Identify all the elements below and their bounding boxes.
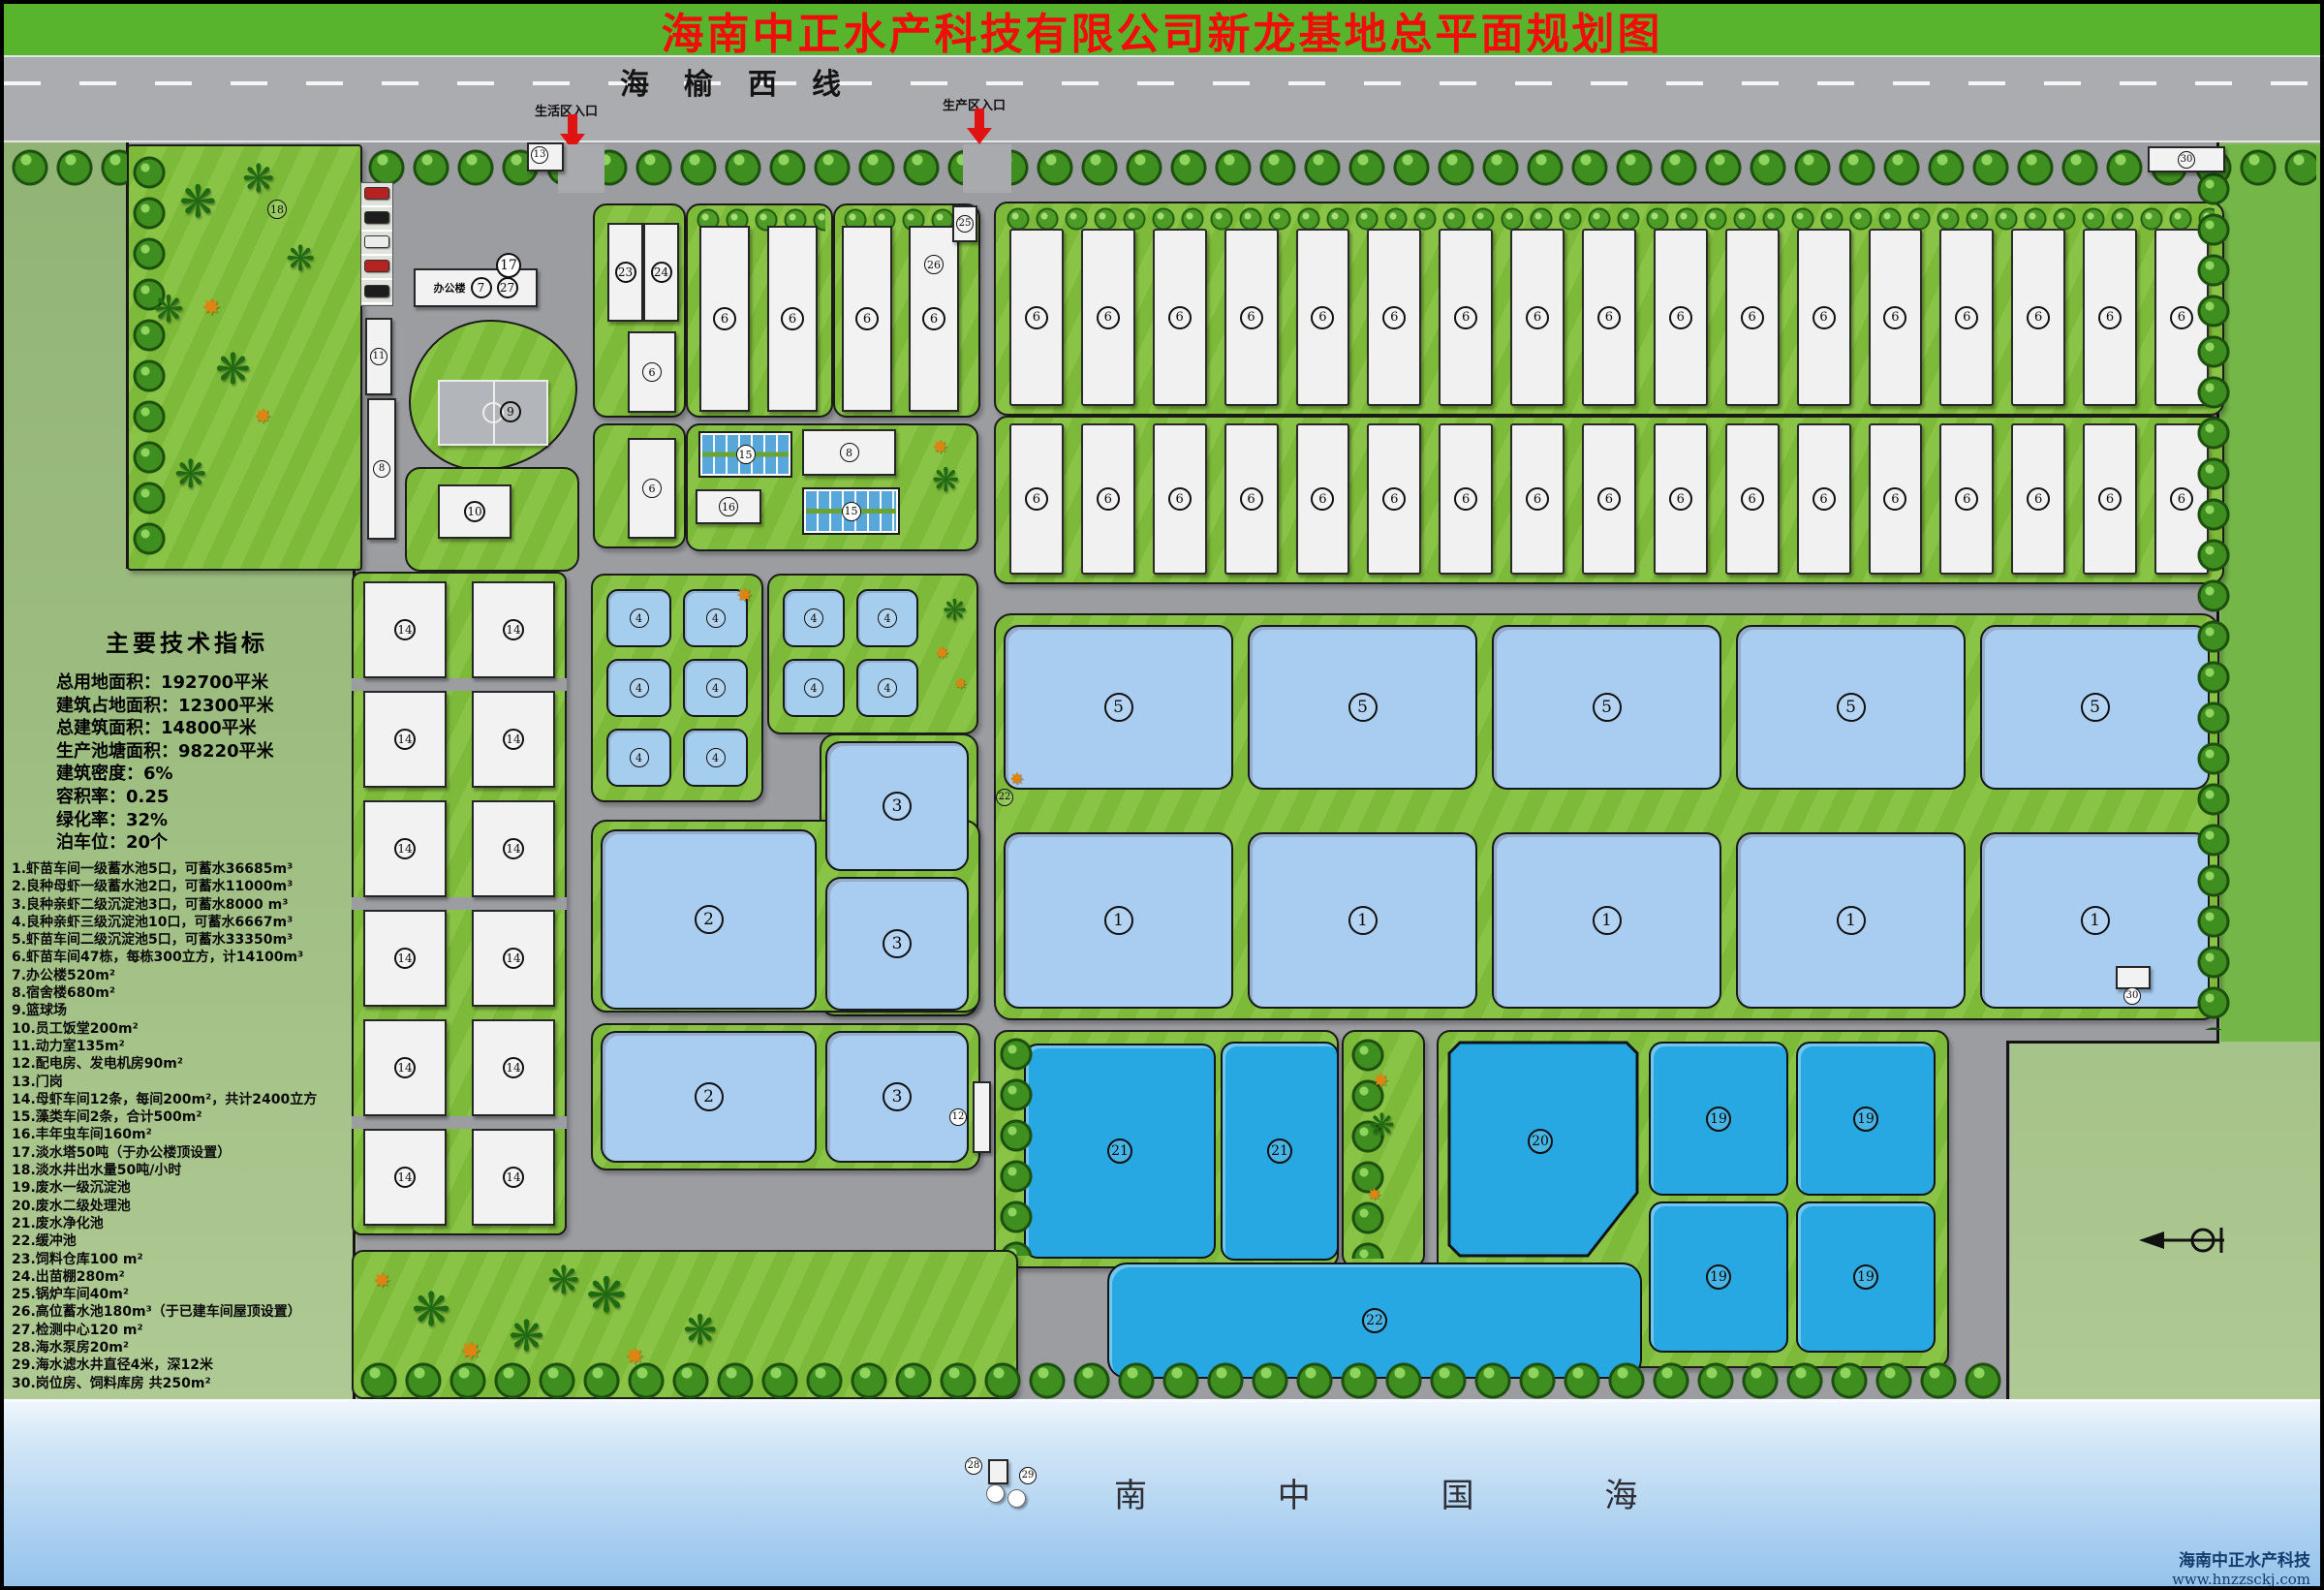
purification-pond: 21 xyxy=(1221,1042,1339,1261)
marker-6-shed: 6 xyxy=(1741,487,1764,511)
canteen-building: 10 xyxy=(438,484,511,539)
reservoir-pond: 1 xyxy=(1004,832,1233,1009)
tree-strip-zone: ❋ ✸ ✸ xyxy=(1342,1030,1425,1268)
shrimp-shed-building: 6 xyxy=(1582,229,1636,406)
marker-4-tertiary-sedimentation: 4 xyxy=(706,608,726,628)
marker-30-post-house: 30 xyxy=(2123,987,2141,1005)
palm-tree-icon: ❋ xyxy=(547,1262,580,1300)
palm-tree-icon: ❋ xyxy=(153,291,184,327)
list-item: 29.海水滤水井直径4米，深12米 xyxy=(12,1356,353,1374)
filter-well-icon xyxy=(986,1484,1005,1503)
marker-8-dormitory: 8 xyxy=(373,460,390,478)
shrimp-shed-building: 6 xyxy=(842,226,892,412)
generator-building xyxy=(973,1081,991,1153)
shrimp-shed-building: 6 xyxy=(1869,229,1923,406)
marker-4-tertiary-sedimentation: 4 xyxy=(630,678,649,698)
marker-6-shed: 6 xyxy=(2098,487,2122,511)
pond4-zone: 4 4 4 4 4 4 xyxy=(591,574,763,802)
list-item: 总用地面积：192700平米 xyxy=(56,671,318,695)
list-item: 23.饲料仓库100 m² xyxy=(12,1251,353,1268)
list-item: 15.藻类车间2条，合计500m² xyxy=(12,1108,353,1126)
reservoir-pond: 1 xyxy=(1980,832,2210,1009)
marker-4-tertiary-sedimentation: 4 xyxy=(630,748,649,767)
marker-5-secondary-sedimentation: 5 xyxy=(1593,693,1622,722)
marker-6-shed: 6 xyxy=(1168,487,1192,511)
shrimp-shed-building: 6 xyxy=(2011,229,2065,406)
tertiary-sedimentation-pond: 4 xyxy=(683,729,748,787)
list-item: 建筑密度：6% xyxy=(56,763,318,786)
marker-14-workshop: 14 xyxy=(394,1167,416,1188)
reservoir-pond: 5 xyxy=(1980,625,2210,790)
legend-list: 1.虾苗车间一级蓄水池5口，可蓄水36685m³2.良种母虾一级蓄水池2口，可蓄… xyxy=(12,860,353,1392)
list-item: 4.良种亲虾三级沉淀池10口，可蓄水6667m³ xyxy=(12,914,353,931)
mother-shrimp-workshop: 14 xyxy=(363,1019,447,1116)
marker-6-shed: 6 xyxy=(1240,306,1263,329)
marker-6-shed: 6 xyxy=(1526,306,1549,329)
shrimp-shed-building: 6 xyxy=(1296,229,1350,406)
algae-pond: 15 xyxy=(802,487,900,535)
reservoir-pond: 1 xyxy=(1736,832,1966,1009)
company-watermark: 海南中正水产科技 www.hnzzsckj.com xyxy=(2172,1546,2310,1588)
seedling-shed-building: 24 xyxy=(643,223,679,322)
marker-16-artemia: 16 xyxy=(719,497,738,516)
shrub-icon: ✸ xyxy=(736,585,753,605)
marker-5-secondary-sedimentation: 5 xyxy=(2081,693,2110,722)
office-label: 办公楼 xyxy=(434,280,466,296)
marker-14-workshop: 14 xyxy=(394,1057,416,1078)
marker-3: 3 xyxy=(883,792,912,821)
shrub-icon: ✸ xyxy=(1367,1187,1381,1204)
list-item: 泊车位：20个 xyxy=(56,831,318,855)
marker-4-tertiary-sedimentation: 4 xyxy=(630,608,649,628)
page-title: 海南中正水产科技有限公司新龙基地总平面规划图 xyxy=(662,0,1663,61)
shrimp-shed-building: 6 xyxy=(1367,229,1421,406)
mother-shrimp-workshop: 14 xyxy=(363,910,447,1007)
primary-reservoir-pond: 2 xyxy=(601,1031,817,1163)
company-name: 海南中正水产科技 xyxy=(2172,1546,2310,1571)
mother-shrimp-workshop: 14 xyxy=(363,581,447,678)
car-icon xyxy=(364,211,389,224)
shrub-icon: ✸ xyxy=(373,1271,390,1293)
tertiary-sedimentation-pond: 4 xyxy=(606,659,671,717)
production-entrance-arrow-icon xyxy=(967,109,992,144)
mother-shrimp-workshop: 14 xyxy=(363,691,447,788)
sea-name: 南 中 国 海 xyxy=(1114,1469,1697,1516)
marker-10-canteen: 10 xyxy=(464,501,485,522)
marker-6-shed: 6 xyxy=(1025,306,1048,329)
reservoir-pond: 5 xyxy=(1248,625,1477,790)
shrimp-shed-building: 6 xyxy=(628,331,676,413)
palm-tree-icon: ❋ xyxy=(242,160,275,199)
reservoir-pond: 5 xyxy=(1736,625,1966,790)
mother-shrimp-workshop: 14 xyxy=(363,1129,447,1226)
marker-6-shed: 6 xyxy=(2170,487,2193,511)
shrub-icon: ✸ xyxy=(1009,771,1024,789)
marker-1-primary-reservoir: 1 xyxy=(1348,906,1378,935)
shrimp-shed-building: 6 xyxy=(1153,423,1207,575)
list-item: 建筑占地面积：12300平米 xyxy=(56,695,318,718)
marker-20-secondary-treatment: 20 xyxy=(1528,1129,1553,1154)
marker-6-shed: 6 xyxy=(1526,487,1549,511)
list-item: 17.淡水塔50吨（于办公楼顶设置） xyxy=(12,1144,353,1162)
marker-26-rooftop-tank: 26 xyxy=(924,255,944,274)
shed-zone: 6 6 xyxy=(686,203,833,418)
palm-tree-icon: ❋ xyxy=(943,597,967,626)
palm-tree-icon: ❋ xyxy=(683,1310,717,1351)
shrub-icon: ✸ xyxy=(254,407,271,428)
dormitory-building-2: 8 xyxy=(802,429,896,476)
palm-tree-icon: ❋ xyxy=(215,349,251,391)
primary-sedimentation-pond: 19 xyxy=(1649,1201,1788,1353)
marker-2: 2 xyxy=(695,1082,724,1111)
list-item: 生产池塘面积：98220平米 xyxy=(56,740,318,764)
marker-1-primary-reservoir: 1 xyxy=(1104,906,1133,935)
marker-17-water-tower: 17 xyxy=(496,253,521,278)
marker-4-tertiary-sedimentation: 4 xyxy=(706,748,726,767)
marker-14-workshop: 14 xyxy=(503,729,524,750)
marker-15-algae: 15 xyxy=(842,502,861,521)
marker-14-workshop: 14 xyxy=(503,948,524,969)
marker-6-shed: 6 xyxy=(1311,306,1334,329)
marker-29-filter-well: 29 xyxy=(1019,1467,1037,1484)
list-item: 19.废水一级沉淀池 xyxy=(12,1179,353,1197)
marker-21-purification: 21 xyxy=(1107,1138,1132,1164)
shrimp-shed-building: 6 xyxy=(1009,229,1064,406)
post-house-building: 30 xyxy=(2148,146,2225,172)
shrimp-shed-building: 6 xyxy=(1224,229,1279,406)
shrimp-shed-building: 6 xyxy=(1153,229,1207,406)
tertiary-sedimentation-pond: 4 xyxy=(783,659,845,717)
right-green-margin xyxy=(2220,144,2320,1042)
marker-6-shed: 6 xyxy=(1597,306,1621,329)
tertiary-sedimentation-pond: 4 xyxy=(606,729,671,787)
marker-14-workshop: 14 xyxy=(394,948,416,969)
marker-19: 19 xyxy=(1706,1107,1731,1132)
highway xyxy=(4,55,2320,142)
palm-tree-icon: ❋ xyxy=(1369,1109,1395,1140)
secondary-sedimentation-pond: 3 xyxy=(825,877,969,1011)
mother-shrimp-workshop: 14 xyxy=(472,1129,555,1226)
tertiary-sedimentation-pond: 4 xyxy=(606,589,671,647)
list-item: 14.母虾车间12条，每间200m²，共计2400立方 xyxy=(12,1091,353,1108)
filter-well-icon xyxy=(1007,1489,1026,1508)
mother-shrimp-workshop: 14 xyxy=(472,910,555,1007)
algae-zone: 15 8 16 15 ❋ ✸ xyxy=(686,423,978,551)
marker-6-shed: 6 xyxy=(1955,487,1978,511)
list-item: 10.员工饭堂200m² xyxy=(12,1020,353,1038)
boundary-line xyxy=(2008,1041,2219,1044)
marker-19: 19 xyxy=(1706,1264,1731,1290)
mother-shrimp-workshop: 14 xyxy=(472,581,555,678)
shrimp-shed-building: 6 xyxy=(767,226,818,412)
marker-19: 19 xyxy=(1853,1107,1878,1132)
shrimp-shed-building: 6 xyxy=(1797,423,1851,575)
marker-30-post-house: 30 xyxy=(2178,151,2195,169)
marker-13-gate: 13 xyxy=(531,146,548,164)
marker-4-tertiary-sedimentation: 4 xyxy=(804,608,823,628)
list-item: 1.虾苗车间一级蓄水池5口，可蓄水36685m³ xyxy=(12,860,353,878)
shrimp-shed-building: 6 xyxy=(1797,229,1851,406)
marker-1-primary-reservoir: 1 xyxy=(2081,906,2110,935)
mother-shrimp-workshop: 14 xyxy=(472,691,555,788)
primary-reservoir-pond: 2 xyxy=(601,829,817,1010)
marker-6-shed: 6 xyxy=(2098,306,2122,329)
list-item: 13.门岗 xyxy=(12,1074,353,1091)
marker-6-shed: 6 xyxy=(1097,306,1120,329)
marker-12-generator: 12 xyxy=(949,1108,967,1126)
shrub-icon: ✸ xyxy=(954,676,967,692)
list-item: 22.缓冲池 xyxy=(12,1232,353,1250)
algae-pond: 15 xyxy=(698,431,792,478)
marker-28-seawater-pump: 28 xyxy=(965,1457,982,1475)
marker-6-shed: 6 xyxy=(713,307,736,330)
shrimp-shed-building: 6 xyxy=(1654,423,1708,575)
primary-sedimentation-pond: 19 xyxy=(1796,1042,1936,1196)
shrimp-shed-building: 6 xyxy=(1296,423,1350,575)
tree-column xyxy=(129,153,170,560)
mother-shrimp-workshop: 14 xyxy=(363,800,447,897)
primary-sedimentation-pond: 19 xyxy=(1796,1201,1936,1353)
marker-6-shed: 6 xyxy=(1240,487,1263,511)
car-icon xyxy=(364,260,389,272)
road-center-dashes xyxy=(4,81,2312,85)
site-plan-map: 海榆西线 生活区入口 生产区入口 ❋ ❋ ❋ ❋ ❋ ❋ ✸ ✸ 18 13 办… xyxy=(0,0,2324,1590)
basketball-court: 9 xyxy=(438,380,548,446)
entrance-driveway xyxy=(963,144,1011,193)
boundary-line xyxy=(2006,1041,2009,1403)
shrimp-shed-building: 6 xyxy=(1654,229,1708,406)
marker-6-shed: 6 xyxy=(1025,487,1048,511)
marker-27-testing-center: 27 xyxy=(497,277,518,298)
list-item: 30.岗位房、饲料库房 共250m² xyxy=(12,1375,353,1392)
list-item: 20.废水二级处理池 xyxy=(12,1198,353,1215)
marker-6-shed: 6 xyxy=(1597,487,1621,511)
marker-6-shed: 6 xyxy=(2027,487,2050,511)
shrub-icon: ✸ xyxy=(932,437,948,456)
marker-9-basketball-court: 9 xyxy=(500,401,521,422)
palm-tree-icon: ❋ xyxy=(412,1287,450,1333)
marker-5-secondary-sedimentation: 5 xyxy=(1348,693,1378,722)
marker-14-workshop: 14 xyxy=(394,729,416,750)
list-item: 25.锅炉车间40m² xyxy=(12,1286,353,1303)
primary-sedimentation-pond: 19 xyxy=(1649,1042,1788,1196)
reservoir-pond: 1 xyxy=(1248,832,1477,1009)
marker-6-shed: 6 xyxy=(855,307,879,330)
shrimp-shed-building: 6 xyxy=(1510,229,1565,406)
reservoir-pond: 5 xyxy=(1004,625,1233,790)
marker-6-shed: 6 xyxy=(781,307,804,330)
tree-column xyxy=(2193,170,2234,1030)
marker-6-shed: 6 xyxy=(1454,306,1477,329)
shrub-icon: ✸ xyxy=(201,296,221,319)
shrimp-shed-building: 6 xyxy=(1725,423,1780,575)
marker-4-tertiary-sedimentation: 4 xyxy=(878,608,897,628)
shrimp-shed-building: 6 xyxy=(1582,423,1636,575)
marker-6-shed: 6 xyxy=(1813,487,1836,511)
car-icon xyxy=(364,285,389,297)
marker-6-shed: 6 xyxy=(922,307,945,330)
marker-5-secondary-sedimentation: 5 xyxy=(1837,693,1866,722)
marker-14-workshop: 14 xyxy=(503,619,524,640)
indicators-list: 总用地面积：192700平米建筑占地面积：12300平米总建筑面积：14800平… xyxy=(56,671,318,855)
shrimp-shed-building: 6 xyxy=(1725,229,1780,406)
marker-2: 2 xyxy=(695,905,724,934)
post-house-building xyxy=(2116,966,2151,989)
marker-14-workshop: 14 xyxy=(503,1057,524,1078)
tertiary-sedimentation-pond: 4 xyxy=(683,659,748,717)
palm-tree-icon: ❋ xyxy=(586,1271,627,1320)
shrimp-shed-building: 6 xyxy=(1009,423,1064,575)
feed-warehouse-zone: 23 24 6 xyxy=(593,203,686,418)
marker-6-shed: 6 xyxy=(1382,306,1406,329)
marker-6-shed: 6 xyxy=(642,362,662,382)
mother-shrimp-workshop: 14 xyxy=(472,800,555,897)
marker-6-shed: 6 xyxy=(2170,306,2193,329)
tertiary-sedimentation-pond: 4 xyxy=(856,589,918,647)
shrimp-shed-building: 6 xyxy=(1869,423,1923,575)
marker-22-buffer: 22 xyxy=(996,789,1013,806)
list-item: 绿化率：32% xyxy=(56,809,318,832)
shrub-icon: ✸ xyxy=(935,645,949,663)
marker-24-seedling-shed: 24 xyxy=(651,262,672,283)
artemia-building: 16 xyxy=(696,489,761,524)
marker-4-tertiary-sedimentation: 4 xyxy=(706,678,726,698)
office-building: 办公楼 7 27 xyxy=(414,268,538,307)
marker-6-shed: 6 xyxy=(1955,306,1978,329)
marker-19: 19 xyxy=(1853,1264,1878,1290)
marker-11-power-room: 11 xyxy=(370,348,387,365)
marker-14-workshop: 14 xyxy=(394,619,416,640)
list-item: 21.废水净化池 xyxy=(12,1215,353,1232)
marker-14-workshop: 14 xyxy=(503,838,524,859)
marker-6-shed: 6 xyxy=(1883,306,1906,329)
marker-6-shed: 6 xyxy=(1669,487,1692,511)
list-item: 28.海水泵房20m² xyxy=(12,1339,353,1356)
workshop14-zone: 14 14 14 14 14 14 14 14 14 14 14 14 xyxy=(352,572,567,1235)
tree-row xyxy=(356,1358,2005,1403)
title-bar: 海南中正水产科技有限公司新龙基地总平面规划图 xyxy=(4,4,2320,55)
marker-6-shed: 6 xyxy=(1883,487,1906,511)
list-item: 5.虾苗车间二级沉淀池5口，可蓄水33350m³ xyxy=(12,931,353,949)
marker-6-shed: 6 xyxy=(2027,306,2050,329)
shrimp-shed-building: 6 xyxy=(1367,423,1421,575)
marker-7-office: 7 xyxy=(471,277,492,298)
list-item: 6.虾苗车间47栋，每栋300立方，计14100m³ xyxy=(12,949,353,966)
indicators-title: 主要技术指标 xyxy=(56,624,318,658)
marker-15-algae: 15 xyxy=(736,445,756,464)
shed-zone: 6 xyxy=(593,423,686,548)
dormitory-building: 8 xyxy=(367,398,396,540)
compass-icon xyxy=(2137,1211,2234,1269)
marker-6-shed: 6 xyxy=(1382,487,1406,511)
mother-shrimp-workshop: 14 xyxy=(472,1019,555,1116)
car-icon xyxy=(364,187,389,200)
marker-5-secondary-sedimentation: 5 xyxy=(1104,693,1133,722)
shrimp-shed-building: 6 xyxy=(1439,423,1493,575)
palm-tree-icon: ❋ xyxy=(932,464,960,497)
shed-row-zone: 6 6 6 6 6 6 6 6 6 6 6 6 xyxy=(994,202,2224,416)
list-item: 2.良种母虾一级蓄水池2口，可蓄水11000m³ xyxy=(12,878,353,895)
palm-tree-icon: ❋ xyxy=(174,455,207,494)
secondary-sedimentation-pond: 3 xyxy=(825,741,969,871)
list-item: 12.配电房、发电机房90m² xyxy=(12,1055,353,1073)
marker-3: 3 xyxy=(883,929,912,958)
list-item: 3.良种亲虾二级沉淀池3口，可蓄水8000 m³ xyxy=(12,896,353,914)
marker-6-shed: 6 xyxy=(642,479,662,498)
list-item: 26.高位蓄水池180m³（于已建车间屋顶设置） xyxy=(12,1303,353,1321)
list-item: 8.宿舍楼680m² xyxy=(12,984,353,1002)
marker-4-tertiary-sedimentation: 4 xyxy=(804,678,823,698)
marker-18-freshwater-well: 18 xyxy=(267,200,287,219)
car-icon xyxy=(364,235,389,248)
palm-tree-icon: ❋ xyxy=(509,1316,544,1358)
marker-1-primary-reservoir: 1 xyxy=(1837,906,1866,935)
shed-row-zone: 6 6 6 6 6 6 6 6 6 6 6 6 xyxy=(994,416,2224,584)
reservoir-pond: 5 xyxy=(1492,625,1721,790)
list-item: 7.办公楼520m² xyxy=(12,967,353,984)
marker-23-feed-warehouse: 23 xyxy=(615,262,636,283)
secondary-sedimentation-pond: 3 xyxy=(825,1031,969,1163)
marker-25-boiler: 25 xyxy=(956,215,974,233)
list-item: 18.淡水井出水量50吨/小时 xyxy=(12,1162,353,1179)
big-pond-zone: 5 5 5 5 5 1 1 1 1 1 xyxy=(994,613,2219,1020)
reservoir-pond: 1 xyxy=(1492,832,1721,1009)
shrimp-shed-building: 6 xyxy=(1081,229,1135,406)
power-room-building: 11 xyxy=(365,318,392,395)
palm-tree-icon: ❋ xyxy=(179,179,217,224)
marker-6-shed: 6 xyxy=(1097,487,1120,511)
list-item: 24.出苗棚280m² xyxy=(12,1268,353,1286)
pond4-zone: 4 4 4 4 ❋ ✸ ✸ xyxy=(767,574,978,734)
shrimp-shed-building: 6 xyxy=(1439,229,1493,406)
boiler-building: 25 xyxy=(952,205,977,242)
marker-6-shed: 6 xyxy=(1669,306,1692,329)
shrimp-shed-building: 6 xyxy=(1510,423,1565,575)
technical-indicators: 主要技术指标 总用地面积：192700平米建筑占地面积：12300平米总建筑面积… xyxy=(56,624,318,855)
marker-6-shed: 6 xyxy=(1454,487,1477,511)
marker-1-primary-reservoir: 1 xyxy=(1593,906,1622,935)
list-item: 27.检测中心120 m² xyxy=(12,1322,353,1339)
shrimp-shed-building: 6 xyxy=(2083,423,2137,575)
company-website: www.hnzzsckj.com xyxy=(2172,1571,2310,1588)
marker-21-purification: 21 xyxy=(1267,1138,1292,1164)
feed-warehouse-building: 23 xyxy=(607,223,643,322)
shrimp-shed-building: 6 xyxy=(699,226,750,412)
marker-14-workshop: 14 xyxy=(503,1167,524,1188)
curb-line xyxy=(4,140,2320,142)
seawater-pump-building xyxy=(988,1459,1008,1484)
pond21-zone: 21 21 xyxy=(994,1030,1339,1268)
marker-22-buffer: 22 xyxy=(1362,1308,1387,1333)
purification-pond: 21 xyxy=(1024,1044,1216,1259)
marker-6-shed: 6 xyxy=(1311,487,1334,511)
palm-tree-icon: ❋ xyxy=(286,242,315,277)
shrimp-shed-building: 6 xyxy=(1939,229,1994,406)
tree-column xyxy=(996,1035,1037,1256)
marker-14-workshop: 14 xyxy=(394,838,416,859)
tertiary-sedimentation-pond: 4 xyxy=(856,659,918,717)
entrance-driveway xyxy=(558,144,604,193)
marker-6-shed: 6 xyxy=(1813,306,1836,329)
shrimp-shed-building: 6 xyxy=(2011,423,2065,575)
shrimp-shed-building: 6 xyxy=(628,438,676,539)
shrimp-shed-building: 26 6 xyxy=(909,226,959,412)
list-item: 16.丰年虫车间160m² xyxy=(12,1126,353,1143)
tertiary-sedimentation-pond: 4 xyxy=(783,589,845,647)
shrimp-shed-building: 6 xyxy=(1224,423,1279,575)
marker-6-shed: 6 xyxy=(1741,306,1764,329)
marker-6-shed: 6 xyxy=(1168,306,1192,329)
